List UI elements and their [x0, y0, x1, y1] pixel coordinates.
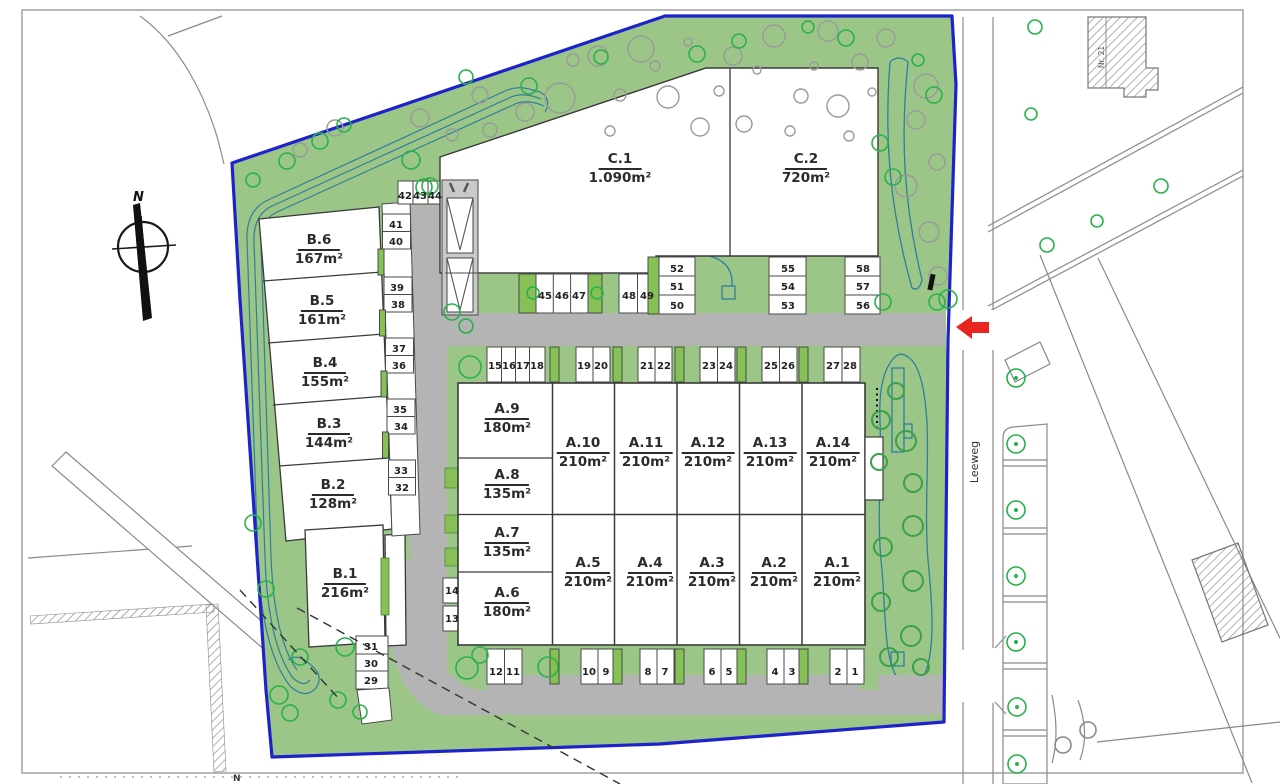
parking-spot-26: 26 [781, 361, 795, 372]
building-label-b2: B.2 128m² [309, 474, 357, 513]
ramp-structure [442, 180, 478, 315]
compass-north-label: N [133, 190, 144, 205]
site-plan-canvas: N N Leeweg Nr. 21 1 2 3 4 5 6 7 8 9 10 1… [0, 0, 1280, 784]
parking-spot-3: 3 [789, 667, 796, 678]
parking-spot-9: 9 [603, 667, 610, 678]
building-label-b6: B.6 167m² [295, 229, 343, 268]
parking-spot-14: 14 [445, 586, 459, 597]
parking-spot-54: 54 [781, 282, 795, 293]
building-label-c2: C.2 720m² [782, 148, 830, 187]
parking-spot-11: 11 [506, 667, 520, 678]
parking-spot-4: 4 [772, 667, 779, 678]
parking-spot-13: 13 [445, 614, 459, 625]
parking-spot-40: 40 [389, 237, 403, 248]
building-label-a10: A.10 210m² [557, 432, 610, 471]
parking-spot-48: 48 [622, 291, 636, 302]
parking-spot-32: 32 [395, 483, 409, 494]
parking-spot-37: 37 [392, 344, 406, 355]
building-label-a13: A.13 210m² [744, 432, 797, 471]
street-trees-east [1007, 20, 1168, 773]
building-label-a9: A.9 180m² [483, 398, 531, 437]
parking-spot-19: 19 [577, 361, 591, 372]
surrounding-roads-east [963, 17, 1280, 784]
parking-spot-41: 41 [389, 220, 403, 231]
parking-spot-21: 21 [640, 361, 654, 372]
parking-spot-22: 22 [657, 361, 671, 372]
parking-spot-30: 30 [364, 659, 378, 670]
parking-spot-55: 55 [781, 264, 795, 275]
building-label-c1: C.1 1.090m² [589, 148, 652, 187]
parking-spot-45: 45 [538, 291, 552, 302]
parking-spot-20: 20 [594, 361, 608, 372]
parking-spot-46: 46 [555, 291, 569, 302]
parking-spot-47: 47 [572, 291, 586, 302]
parking-spot-33: 33 [394, 466, 408, 477]
site-plan: N N Leeweg Nr. 21 1 2 3 4 5 6 7 8 9 10 1… [0, 0, 1280, 784]
parking-spot-27: 27 [826, 361, 840, 372]
parking-spot-28: 28 [843, 361, 857, 372]
parking-spot-36: 36 [392, 361, 406, 372]
parking-spot-10: 10 [582, 667, 596, 678]
parking-spot-51: 51 [670, 282, 684, 293]
parking-spot-39: 39 [390, 283, 404, 294]
parking-spot-24: 24 [719, 361, 733, 372]
building-label-b3: B.3 144m² [305, 413, 353, 452]
neighbor-building-southeast [1192, 543, 1268, 642]
building-label-b1: B.1 216m² [321, 563, 369, 602]
parking-spot-42: 42 [398, 191, 412, 202]
parking-spot-50: 50 [670, 301, 684, 312]
parking-spot-29: 29 [364, 676, 378, 687]
parking-spot-2: 2 [835, 667, 842, 678]
building-label-a3: A.3 210m² [688, 552, 736, 591]
parking-spot-12: 12 [489, 667, 503, 678]
parking-spot-15: 15 [488, 361, 502, 372]
parking-spot-52: 52 [670, 264, 684, 275]
street-label-leeweg: Leeweg [968, 441, 981, 483]
parking-spot-34: 34 [394, 422, 408, 433]
parking-spot-49: 49 [640, 291, 654, 302]
parking-spot-5: 5 [726, 667, 733, 678]
building-label-a1: A.1 210m² [813, 552, 861, 591]
parking-spot-6: 6 [709, 667, 716, 678]
building-label-a5: A.5 210m² [564, 552, 612, 591]
building-label-a7: A.7 135m² [483, 522, 531, 561]
parking-spot-25: 25 [764, 361, 778, 372]
building-label-a8: A.8 135m² [483, 464, 531, 503]
bottom-north-label: N [233, 774, 241, 784]
parking-spot-18: 18 [530, 361, 544, 372]
building-label-a12: A.12 210m² [682, 432, 735, 471]
boundary-hatch-vertical [206, 604, 226, 772]
building-label-a11: A.11 210m² [620, 432, 673, 471]
building-label-a2: A.2 210m² [750, 552, 798, 591]
parking-spot-56: 56 [856, 301, 870, 312]
parking-spot-1: 1 [852, 667, 859, 678]
parking-spot-43: 43 [413, 191, 427, 202]
parking-spot-38: 38 [391, 300, 405, 311]
parking-spot-23: 23 [702, 361, 716, 372]
parking-spot-35: 35 [393, 405, 407, 416]
parking-spot-17: 17 [516, 361, 530, 372]
parking-spot-7: 7 [662, 667, 669, 678]
parking-spot-44: 44 [428, 191, 442, 202]
building-label-b4: B.4 155m² [301, 352, 349, 391]
neighbor-label-nr21: Nr. 21 [1097, 46, 1106, 69]
parking-spot-16: 16 [502, 361, 516, 372]
parking-spot-57: 57 [856, 282, 870, 293]
building-label-a4: A.4 210m² [626, 552, 674, 591]
boundary-hatch-horizontal [30, 604, 214, 624]
building-label-a14: A.14 210m² [807, 432, 860, 471]
building-label-b5: B.5 161m² [298, 290, 346, 329]
parking-spot-53: 53 [781, 301, 795, 312]
parking-spot-58: 58 [856, 264, 870, 275]
building-label-a6: A.6 180m² [483, 582, 531, 621]
compass-icon: N [112, 190, 176, 321]
parking-spot-31: 31 [364, 642, 378, 653]
parking-spot-8: 8 [645, 667, 652, 678]
